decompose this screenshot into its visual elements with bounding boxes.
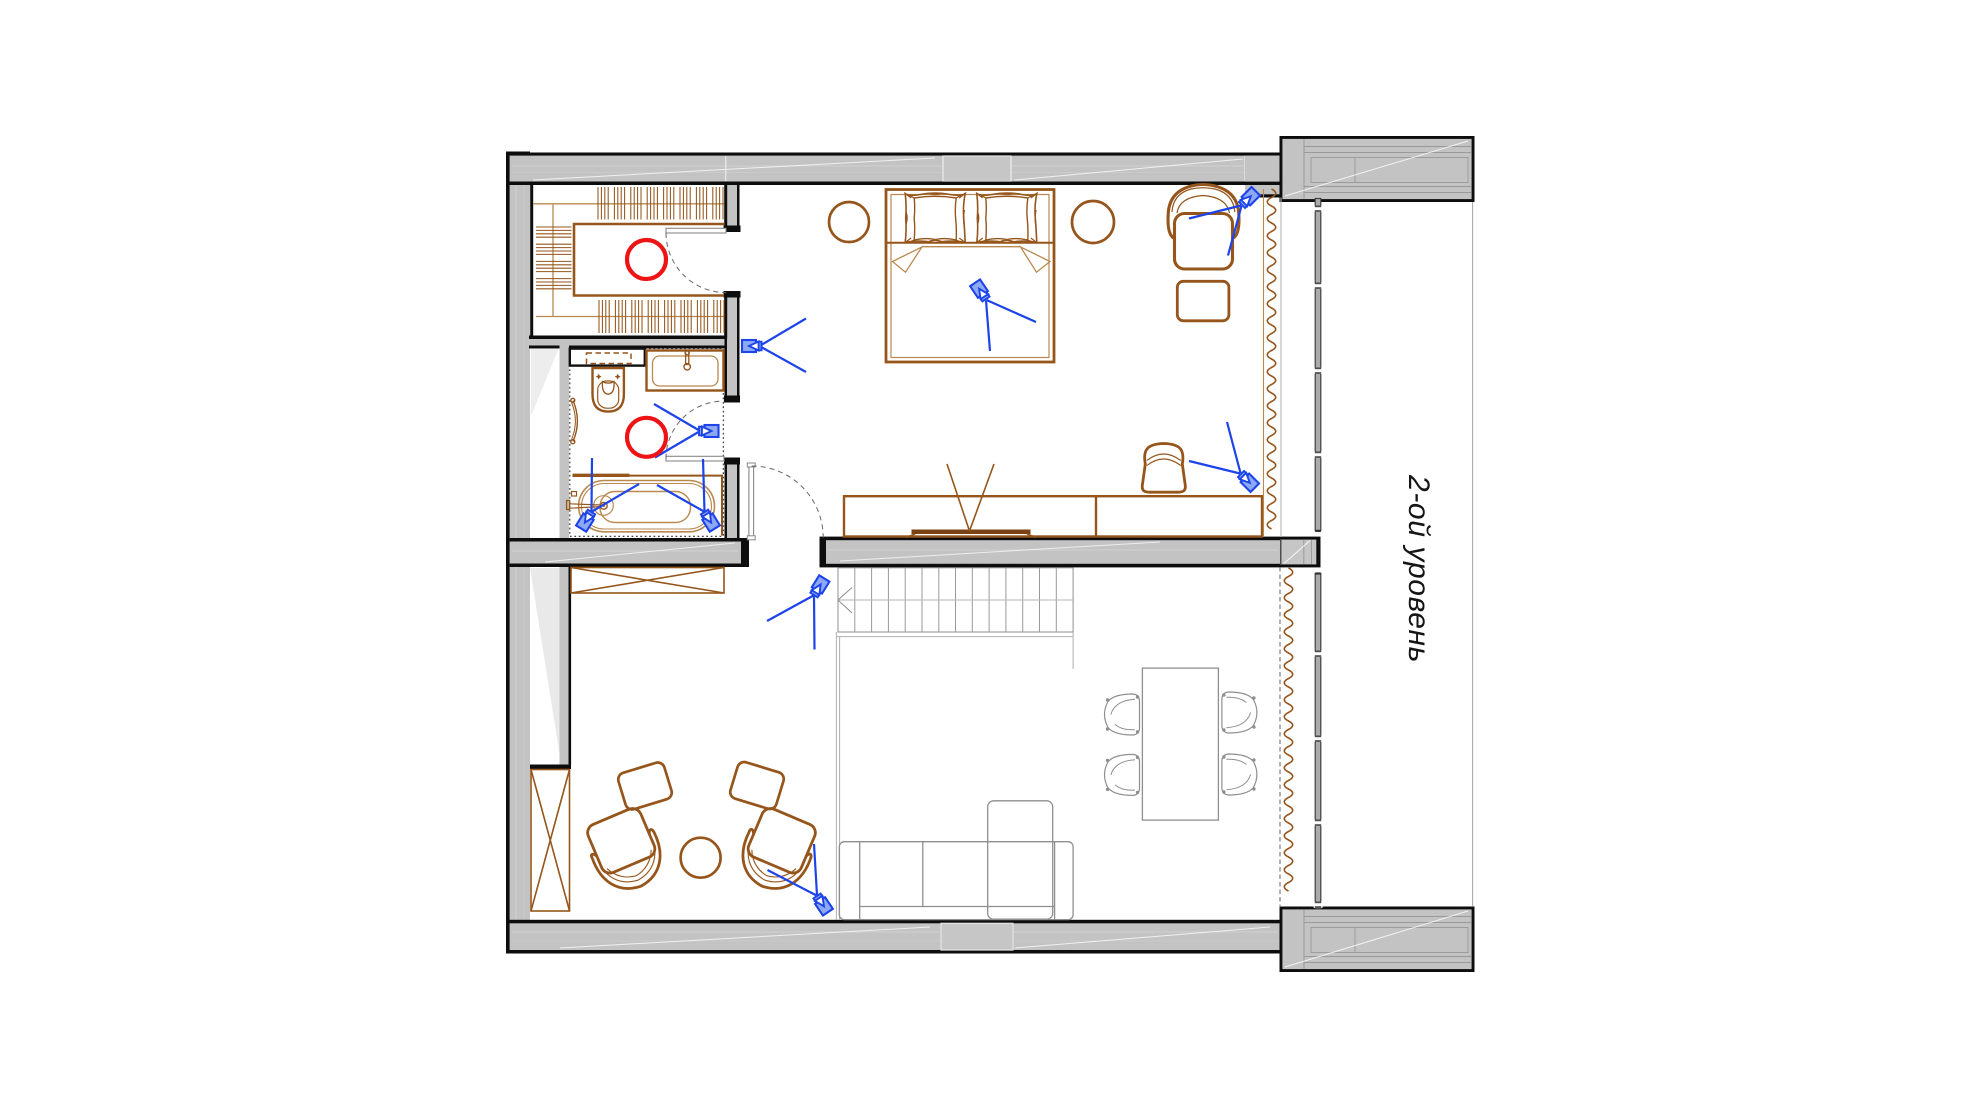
svg-text:2-ой уровень: 2-ой уровень — [1402, 474, 1435, 663]
